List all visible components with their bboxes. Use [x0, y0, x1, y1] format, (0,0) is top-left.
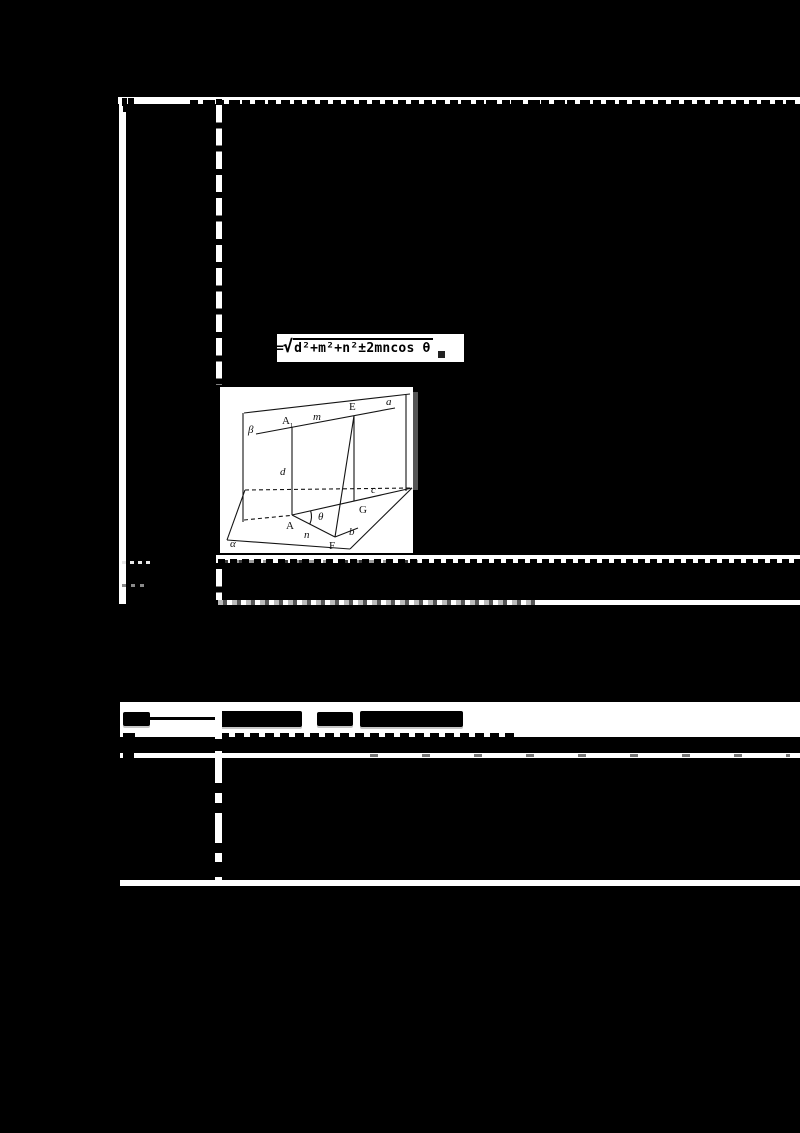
label-G: G [359, 504, 367, 516]
radical-sign: √ [283, 337, 293, 357]
label-A1: A [282, 415, 290, 427]
label-n: n [304, 529, 310, 541]
geometry-figure: β a A 1 m E d c A θ G n F b α [220, 387, 413, 553]
upper-table-bottom-border [218, 600, 800, 605]
lower-table-bottom-border [120, 880, 800, 886]
scan-speckle [370, 754, 790, 757]
scan-speckle [122, 561, 150, 564]
scan-glyph-fragment [215, 843, 222, 853]
scan-glyph-fragment [122, 98, 127, 106]
scan-glyph-fragment [215, 783, 222, 793]
line-b [335, 528, 358, 537]
segment-EF [335, 416, 354, 537]
redacted-text-top-fragments [220, 733, 520, 738]
scan-glyph-fragment [215, 803, 222, 813]
lower-table-column-divider [215, 703, 222, 880]
scan-glyph-fragment [133, 107, 137, 114]
line-c [292, 488, 412, 515]
scan-glyph-fragment [123, 753, 134, 758]
label-alpha: α [230, 538, 236, 550]
full-stop-blob: 。 [438, 351, 445, 358]
lower-table-top-border [120, 702, 800, 709]
upper-table-column-divider [216, 97, 222, 385]
scan-speckle [218, 600, 538, 605]
label-d: d [280, 466, 286, 478]
label-beta: β [247, 424, 254, 436]
label-A1-subscript: 1 [290, 422, 293, 429]
scan-glyph-fragment [123, 733, 135, 737]
plane-intersection-line [245, 488, 412, 490]
redacted-label-blob [123, 712, 150, 726]
radicand: d²+m²+n²±2mncos θ [293, 338, 432, 356]
plane-alpha-right-edge [350, 488, 412, 549]
redacted-text-blob [360, 711, 463, 727]
segment-AF [292, 515, 335, 537]
scan-speckle [122, 584, 148, 587]
dihedral-distance-diagram: β a A 1 m E d c A θ G n F b α [220, 387, 413, 553]
scan-glyph-fragment [123, 106, 132, 112]
label-F: F [329, 540, 335, 552]
lower-table-row-divider [120, 753, 800, 758]
redacted-text-blob [317, 712, 353, 726]
scan-edge-shadow [413, 392, 418, 490]
redacted-text-blob [220, 711, 302, 727]
redacted-text-top-fragments [218, 559, 800, 563]
hidden-edge-to-A [244, 516, 290, 521]
scan-glyph-fragment [215, 739, 222, 751]
theta-angle-arc [310, 511, 312, 524]
redacted-underline [150, 717, 216, 720]
upper-table-row-divider [218, 555, 800, 563]
line-a [256, 408, 395, 434]
label-A: A [286, 520, 294, 532]
redacted-text-top-fragments [190, 100, 795, 104]
formula-box: = √ d²+m²+n²±2mncos θ 。 [277, 334, 464, 362]
label-m: m [313, 411, 321, 423]
label-line-a: a [386, 396, 392, 408]
plane-alpha-left-edge [227, 490, 245, 540]
label-c: c [371, 484, 376, 496]
upper-table-left-border [119, 97, 126, 604]
label-theta: θ [318, 511, 324, 523]
label-b: b [349, 526, 355, 538]
label-E: E [349, 401, 356, 413]
scanned-page: = √ d²+m²+n²±2mncos θ 。 [0, 0, 800, 1133]
scan-glyph-fragment [215, 862, 222, 877]
